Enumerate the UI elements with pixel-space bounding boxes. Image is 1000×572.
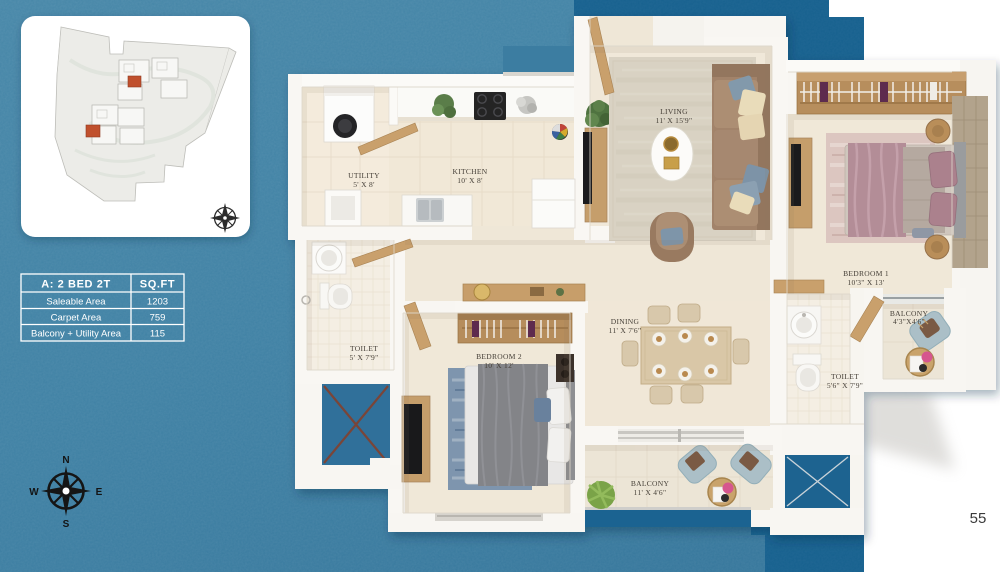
svg-text:Saleable Area: Saleable Area [46,297,106,308]
svg-text:UTILITY: UTILITY [348,171,380,180]
svg-text:10' X 12': 10' X 12' [484,361,514,370]
svg-text:1203: 1203 [147,297,168,308]
svg-text:S: S [63,519,70,530]
svg-text:LIVING: LIVING [660,107,688,116]
svg-text:11' X 15'9": 11' X 15'9" [656,116,693,125]
svg-text:115: 115 [150,329,165,340]
svg-text:55: 55 [970,510,987,527]
svg-text:10'3" X 13': 10'3" X 13' [848,278,885,287]
svg-text:10' X 8': 10' X 8' [457,176,483,185]
svg-text:759: 759 [150,313,166,324]
svg-text:N: N [62,455,69,466]
svg-text:4'3"X4'6": 4'3"X4'6" [893,317,925,326]
svg-text:W: W [29,487,39,498]
svg-text:5' X 8': 5' X 8' [353,180,375,189]
svg-text:11' X 4'6": 11' X 4'6" [634,488,667,497]
svg-text:Balcony + Utility Area: Balcony + Utility Area [31,329,122,340]
svg-text:5' X 7'9": 5' X 7'9" [350,353,379,362]
svg-text:A: 2 BED 2T: A: 2 BED 2T [41,279,111,291]
svg-text:5'6" X 7'9": 5'6" X 7'9" [827,381,863,390]
svg-text:11' X 7'6": 11' X 7'6" [609,326,642,335]
svg-text:TOILET: TOILET [831,372,859,381]
svg-text:DINING: DINING [611,317,640,326]
svg-text:BEDROOM 2: BEDROOM 2 [476,352,522,361]
svg-text:BALCONY: BALCONY [631,479,670,488]
svg-text:E: E [96,487,103,498]
svg-text:BEDROOM 1: BEDROOM 1 [843,269,889,278]
svg-text:KITCHEN: KITCHEN [452,167,487,176]
svg-text:SQ.FT: SQ.FT [140,279,175,291]
svg-text:TOILET: TOILET [350,344,378,353]
svg-text:Carpet Area: Carpet Area [51,313,102,324]
